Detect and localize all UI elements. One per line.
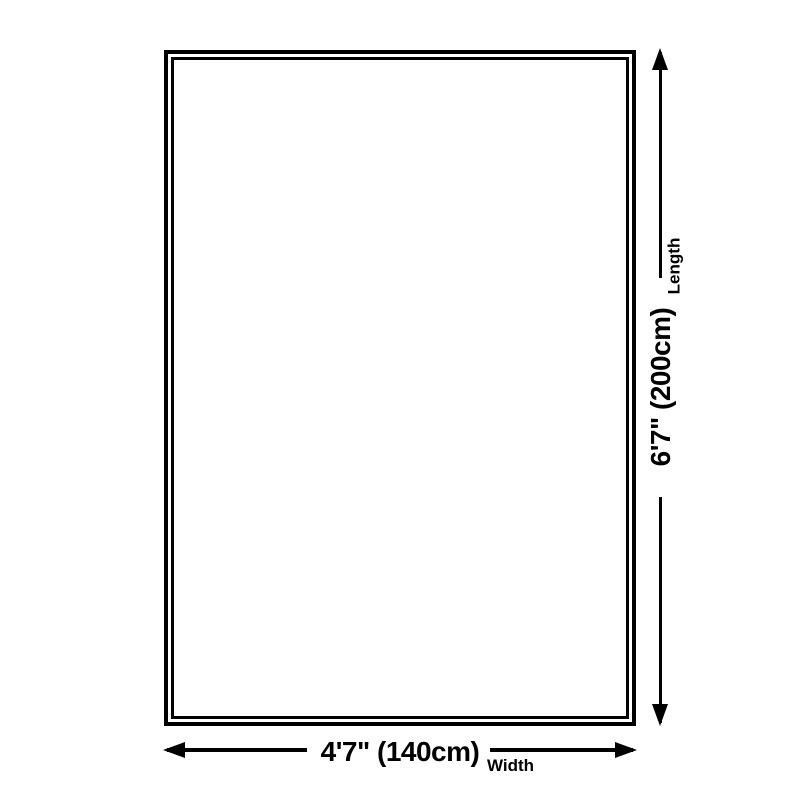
rug-size-diagram: 6'7" (200cm) Length 4'7" (140cm) Width <box>0 0 800 800</box>
length-dimension-line-upper <box>659 52 662 278</box>
width-dimension-value: 4'7" (140cm) <box>321 738 480 766</box>
arrow-right-icon <box>615 742 637 758</box>
length-dimension-line-lower <box>659 497 662 723</box>
width-dimension-label: Width <box>487 757 534 774</box>
width-dimension-line-left <box>167 748 307 752</box>
arrow-down-icon <box>652 704 668 726</box>
length-dimension-value: 6'7" (200cm) <box>647 308 675 467</box>
length-dimension-label: Length <box>666 238 683 295</box>
width-dimension-line-right <box>490 748 633 752</box>
rug-inner-border <box>171 57 629 719</box>
rug-outline <box>164 50 636 726</box>
